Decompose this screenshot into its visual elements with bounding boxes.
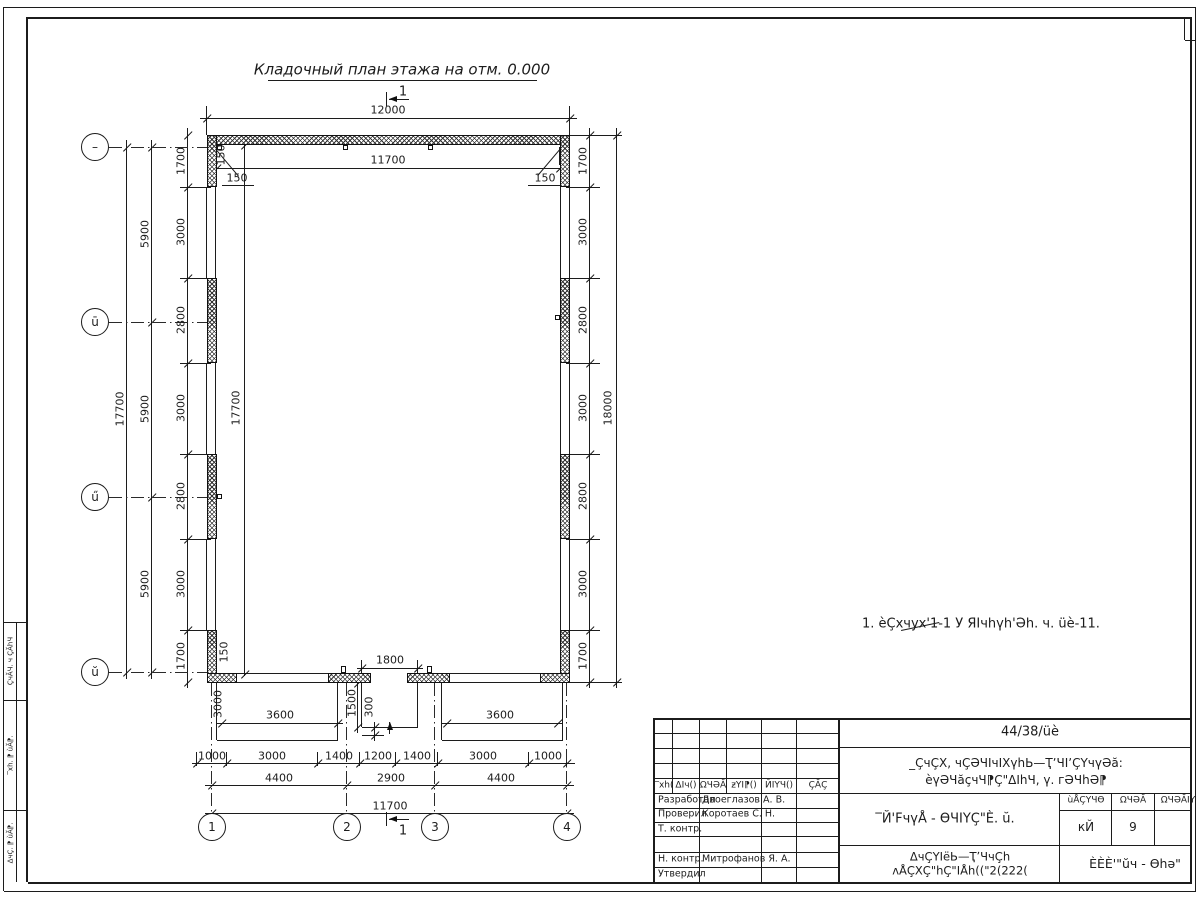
section-mark-label: 1 <box>399 825 407 838</box>
drawing-line <box>1060 810 1192 811</box>
wall <box>207 278 217 363</box>
dim-label: Двоеглазов А. В. <box>702 795 785 805</box>
dim-label: 150 <box>535 173 556 184</box>
drawing-line <box>192 763 575 764</box>
axis-bubble: ŭ <box>81 658 109 686</box>
wall <box>207 135 570 145</box>
drawing-line <box>217 740 338 741</box>
wall <box>207 673 237 683</box>
drawing-line <box>1195 7 1196 891</box>
dim-label: ÇĂÇ <box>809 782 828 791</box>
drawing-line <box>205 813 574 814</box>
drawing-line <box>1184 17 1185 40</box>
drawing-line <box>16 622 17 882</box>
dim-label: 1800 <box>376 655 404 666</box>
wall <box>540 673 570 683</box>
dim-label: ΩЧӘĂ <box>700 782 726 791</box>
dim-label: 1500 <box>347 689 358 717</box>
dim-label: ‾хh. ⁋ ùĂ⁋. <box>8 735 15 774</box>
section-mark-label: 1 <box>399 86 407 99</box>
dim-label: 3000 <box>469 751 497 762</box>
drawing-line <box>222 185 254 186</box>
axis-bubble: 4 <box>553 813 581 841</box>
drawing-line <box>655 718 1192 720</box>
drawing-line <box>1111 793 1112 845</box>
drawing-line <box>839 718 841 882</box>
axis-bubble-label: 3 <box>431 820 439 834</box>
stage-value: кЙ <box>1078 821 1094 833</box>
drawing-line <box>1190 17 1192 882</box>
drawing-line <box>3 7 4 891</box>
drawing-line <box>566 630 600 631</box>
drawing-line <box>237 682 328 683</box>
drawing-line <box>562 683 563 740</box>
dim-label: 18000 <box>603 391 614 426</box>
wall <box>207 454 217 539</box>
drawing-line <box>655 778 840 779</box>
drawing-line <box>337 683 338 740</box>
axis-bubble-label: ū <box>91 315 99 329</box>
dim-label: Т. контр. <box>658 824 702 834</box>
drawing-line <box>1185 40 1196 41</box>
dim-label: 2800 <box>578 482 589 510</box>
drawing-line <box>374 722 375 741</box>
drawing-line <box>28 17 1192 19</box>
drawing-line <box>215 187 216 278</box>
project-name: _ÇчÇХ, чÇӘЧIчIХүhЬ—ҬʼЧIʼÇҮчүӘă: <box>909 757 1123 769</box>
dim-label: 3000 <box>176 570 187 598</box>
dim-label: ΩЧӘĂIҮ <box>1161 797 1195 806</box>
dim-label: 11700 <box>371 155 406 166</box>
axis-bubble-label: 4 <box>563 820 571 834</box>
drawing-line <box>566 135 622 136</box>
axis-line <box>109 672 207 673</box>
drawing-line <box>450 682 540 683</box>
dim-label: 150 <box>227 173 248 184</box>
dim-label: 2800 <box>176 306 187 334</box>
dim-label: ΩЧӘĂ <box>1120 797 1146 806</box>
drawing-line <box>796 718 797 882</box>
dim-label: 3000 <box>213 690 224 718</box>
drawing-line <box>180 539 211 540</box>
drawing-line <box>654 718 656 882</box>
drawing-line <box>840 793 1192 794</box>
dim-label: ‾хh( <box>654 782 673 791</box>
drawing-line <box>26 17 28 882</box>
dim-label: 17700 <box>231 391 242 426</box>
page-title: Кладочный план этажа на отм. 0.000 <box>254 63 550 78</box>
drawing-line <box>566 682 622 683</box>
drawing-line <box>215 363 216 454</box>
dim-label: ΔIч() <box>675 782 696 791</box>
dim-tick <box>184 678 193 687</box>
drawing-line <box>560 539 561 630</box>
wall <box>560 278 570 363</box>
dim-label: 3000 <box>578 570 589 598</box>
axis-bubble-label: ŭ <box>91 665 99 679</box>
dim-label: 2800 <box>578 306 589 334</box>
dim-label: 5900 <box>140 220 151 248</box>
drawing-line <box>655 836 840 837</box>
drawing-line <box>244 143 245 676</box>
axis-bubble: ū <box>81 308 109 336</box>
dim-label: 1000 <box>198 751 226 762</box>
wall <box>560 135 570 187</box>
drawing-line <box>4 891 1196 892</box>
dim-label: 1000 <box>534 751 562 762</box>
axis-bubble: 1 <box>198 813 226 841</box>
drawing-line <box>205 785 574 786</box>
drawing-line <box>569 539 570 630</box>
dim-label: 1700 <box>176 147 187 175</box>
pilaster-mark <box>555 315 560 320</box>
dim-label: 4400 <box>487 773 515 784</box>
drawing-sheet: { "page_title": "Кладочный план этажа на… <box>0 0 1200 900</box>
drawing-line <box>4 7 1196 8</box>
wall <box>407 673 450 683</box>
drawing-line <box>442 723 563 724</box>
drawing-line <box>840 845 1192 846</box>
axis-line <box>566 683 567 813</box>
axis-line <box>109 322 207 323</box>
doc-number: 44/38/üè <box>1001 726 1059 739</box>
drawing-line <box>655 733 840 734</box>
drawing-line <box>569 187 570 278</box>
dim-label: 2900 <box>377 773 405 784</box>
axis-line <box>109 497 207 498</box>
dim-label: Митрофанов Я. А. <box>702 854 791 864</box>
drawing-line <box>528 185 560 186</box>
dim-label: Н. контр. <box>658 854 704 864</box>
dim-tick <box>184 131 193 140</box>
drawing-line <box>569 363 570 454</box>
drawing-line <box>840 747 1192 748</box>
drawing-line <box>655 763 840 764</box>
dim-label: 1400 <box>403 751 431 762</box>
drawing-line <box>417 683 418 727</box>
dim-label: 3000 <box>578 394 589 422</box>
drawing-line <box>1154 793 1155 845</box>
axis-bubble-label: 1 <box>208 820 216 834</box>
drawing-line <box>206 363 207 454</box>
axis-bubble: ű <box>81 483 109 511</box>
org-name: ʌÅÇХÇ"hÇ"IÅh(("2(222( <box>892 865 1028 877</box>
dim-label: 11700 <box>373 801 408 812</box>
drawing-line <box>566 454 600 455</box>
dim-label: ùÅÇҮЧѲ <box>1068 797 1105 806</box>
sheet-number: 9 <box>1129 821 1137 833</box>
dim-label: ΔчÇ. ⁋ ùĂ⁋. <box>8 823 15 864</box>
dim-label: ÇчĂЧ. ч ÇĂhЧ <box>8 637 15 685</box>
drawing-line <box>214 168 563 169</box>
drawing-line <box>180 187 211 188</box>
axis-bubble-label: – <box>92 140 98 154</box>
axis-line <box>434 683 435 813</box>
dim-label: 2800 <box>176 482 187 510</box>
dim-label: 3000 <box>176 394 187 422</box>
dim-label: ƶҮI⁋() <box>731 782 757 791</box>
dim-label: 1700 <box>176 642 187 670</box>
org-name: ΔчÇҮIёЬ—ҬʼЧчÇh <box>910 851 1010 863</box>
drawing-line <box>386 812 387 826</box>
drawing-line <box>616 128 617 688</box>
dim-label: 1700 <box>578 642 589 670</box>
floor-plan-canvas: –ūűŭ1234Кладочный план этажа на отм. 0.0… <box>0 0 1200 900</box>
dim-label: 4400 <box>265 773 293 784</box>
dim-label: 1200 <box>364 751 392 762</box>
wall <box>328 673 371 683</box>
drawing-line <box>655 748 840 749</box>
pilaster-mark <box>343 145 348 150</box>
drawing-title: ‾Й'FчүÅ - ѲЧIҮÇ"È. ŭ. <box>875 813 1014 826</box>
drawing-line <box>357 668 423 669</box>
dim-label: Проверил <box>658 809 707 819</box>
axis-bubble-label: 2 <box>343 820 351 834</box>
pilaster-mark <box>341 666 346 673</box>
dim-label: 3000 <box>578 218 589 246</box>
drawing-line <box>566 278 600 279</box>
dim-tick <box>241 670 250 679</box>
drawing-line <box>450 673 540 674</box>
drawing-line <box>215 539 216 630</box>
section-arrow-icon <box>387 722 393 730</box>
drawing-line <box>180 363 211 364</box>
drawing-line <box>237 673 328 674</box>
axis-bubble-label: ű <box>91 490 99 504</box>
dim-label: Утвердил <box>658 869 706 879</box>
dim-label: 3600 <box>486 710 514 721</box>
drawing-line <box>206 187 207 278</box>
pilaster-mark <box>428 145 433 150</box>
drawing-line <box>566 539 600 540</box>
drawing-line <box>441 683 442 740</box>
drawing-line <box>1059 793 1060 882</box>
axis-bubble: 3 <box>421 813 449 841</box>
note-text: 1. èÇхчух'1-1 У ЯIчhүh'Әh. ч. üè-11. <box>862 618 1100 631</box>
drawing-line <box>566 363 600 364</box>
drawing-line <box>28 882 1192 884</box>
dim-label: 150 <box>216 145 227 166</box>
wall <box>560 454 570 539</box>
org-code: ÈÈÈ'"ŭч - Ѳhә" <box>1089 858 1181 871</box>
dim-label: 3000 <box>258 751 286 762</box>
section-arrow-icon <box>389 816 397 822</box>
drawing-line <box>217 723 343 724</box>
section-arrow-icon <box>389 96 397 102</box>
dim-label: 1700 <box>578 147 589 175</box>
dim-label: 300 <box>364 697 375 718</box>
dim-label: ЙIҮЧ() <box>765 782 793 791</box>
pilaster-mark <box>217 494 222 499</box>
project-name: èүӘЧăçчЧ⁋Ç"ΔIhЧ, ү. гӘЧhӘ⁋ <box>925 774 1107 786</box>
drawing-line <box>566 187 600 188</box>
pilaster-mark <box>427 666 432 673</box>
dim-label: 150 <box>219 642 230 663</box>
dim-label: 17700 <box>115 392 126 427</box>
drawing-line <box>560 187 561 278</box>
drawing-line <box>560 363 561 454</box>
dim-label: 3600 <box>266 710 294 721</box>
axis-line <box>109 147 207 148</box>
dim-label: 5900 <box>140 570 151 598</box>
axis-bubble: – <box>81 133 109 161</box>
dim-label: 12000 <box>371 105 406 116</box>
dim-label: 5900 <box>140 395 151 423</box>
dim-label: Коротаев С. Н. <box>702 809 775 819</box>
drawing-line <box>268 80 537 81</box>
dim-label: 1400 <box>325 751 353 762</box>
drawing-line <box>206 539 207 630</box>
axis-bubble: 2 <box>333 813 361 841</box>
drawing-line <box>442 740 563 741</box>
dim-label: 3000 <box>176 218 187 246</box>
drawing-line <box>200 118 577 119</box>
